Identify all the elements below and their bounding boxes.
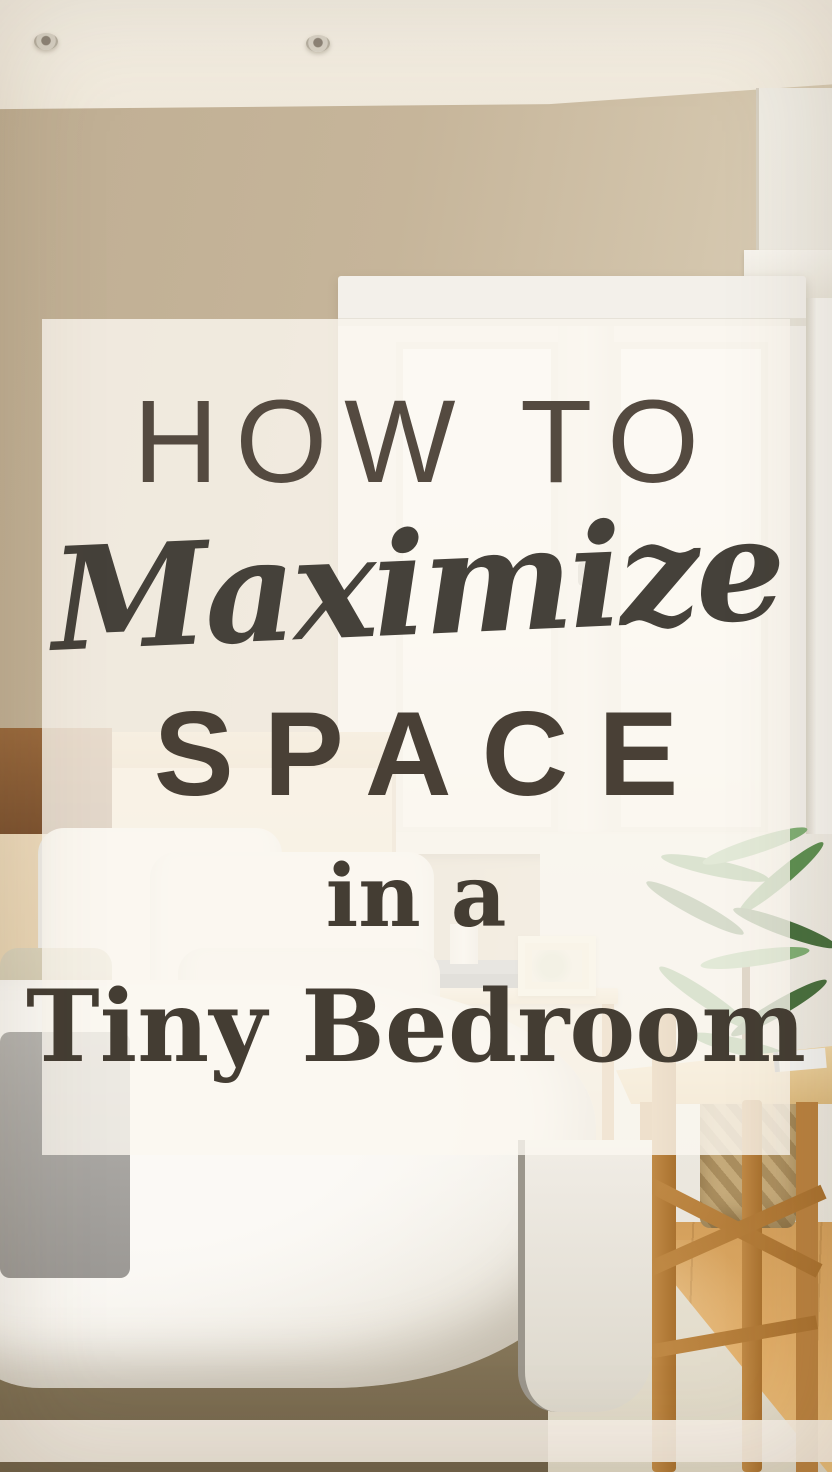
title-line-maximize: Maximize: [48, 495, 785, 676]
title-line-tiny-bedroom: Tiny Bedroom: [26, 978, 806, 1077]
pin-graphic: HOW TO Maximize SPACE in a Tiny Bedroom: [0, 0, 832, 1472]
recessed-light-icon: [306, 35, 330, 52]
title-line-space: SPACE: [124, 694, 709, 814]
title-line-in-a: in a: [326, 854, 507, 940]
title-line-how-to: HOW TO: [116, 383, 716, 501]
bottom-bar: [0, 1420, 832, 1462]
ceiling: [0, 0, 832, 124]
sheet-drape: [518, 1140, 652, 1412]
chair-leg: [742, 1100, 762, 1472]
title-block: HOW TO Maximize SPACE in a Tiny Bedroom: [42, 319, 790, 1155]
desk-leg: [796, 1102, 818, 1472]
recessed-light-icon: [34, 33, 58, 50]
open-window-pane: [806, 298, 832, 858]
